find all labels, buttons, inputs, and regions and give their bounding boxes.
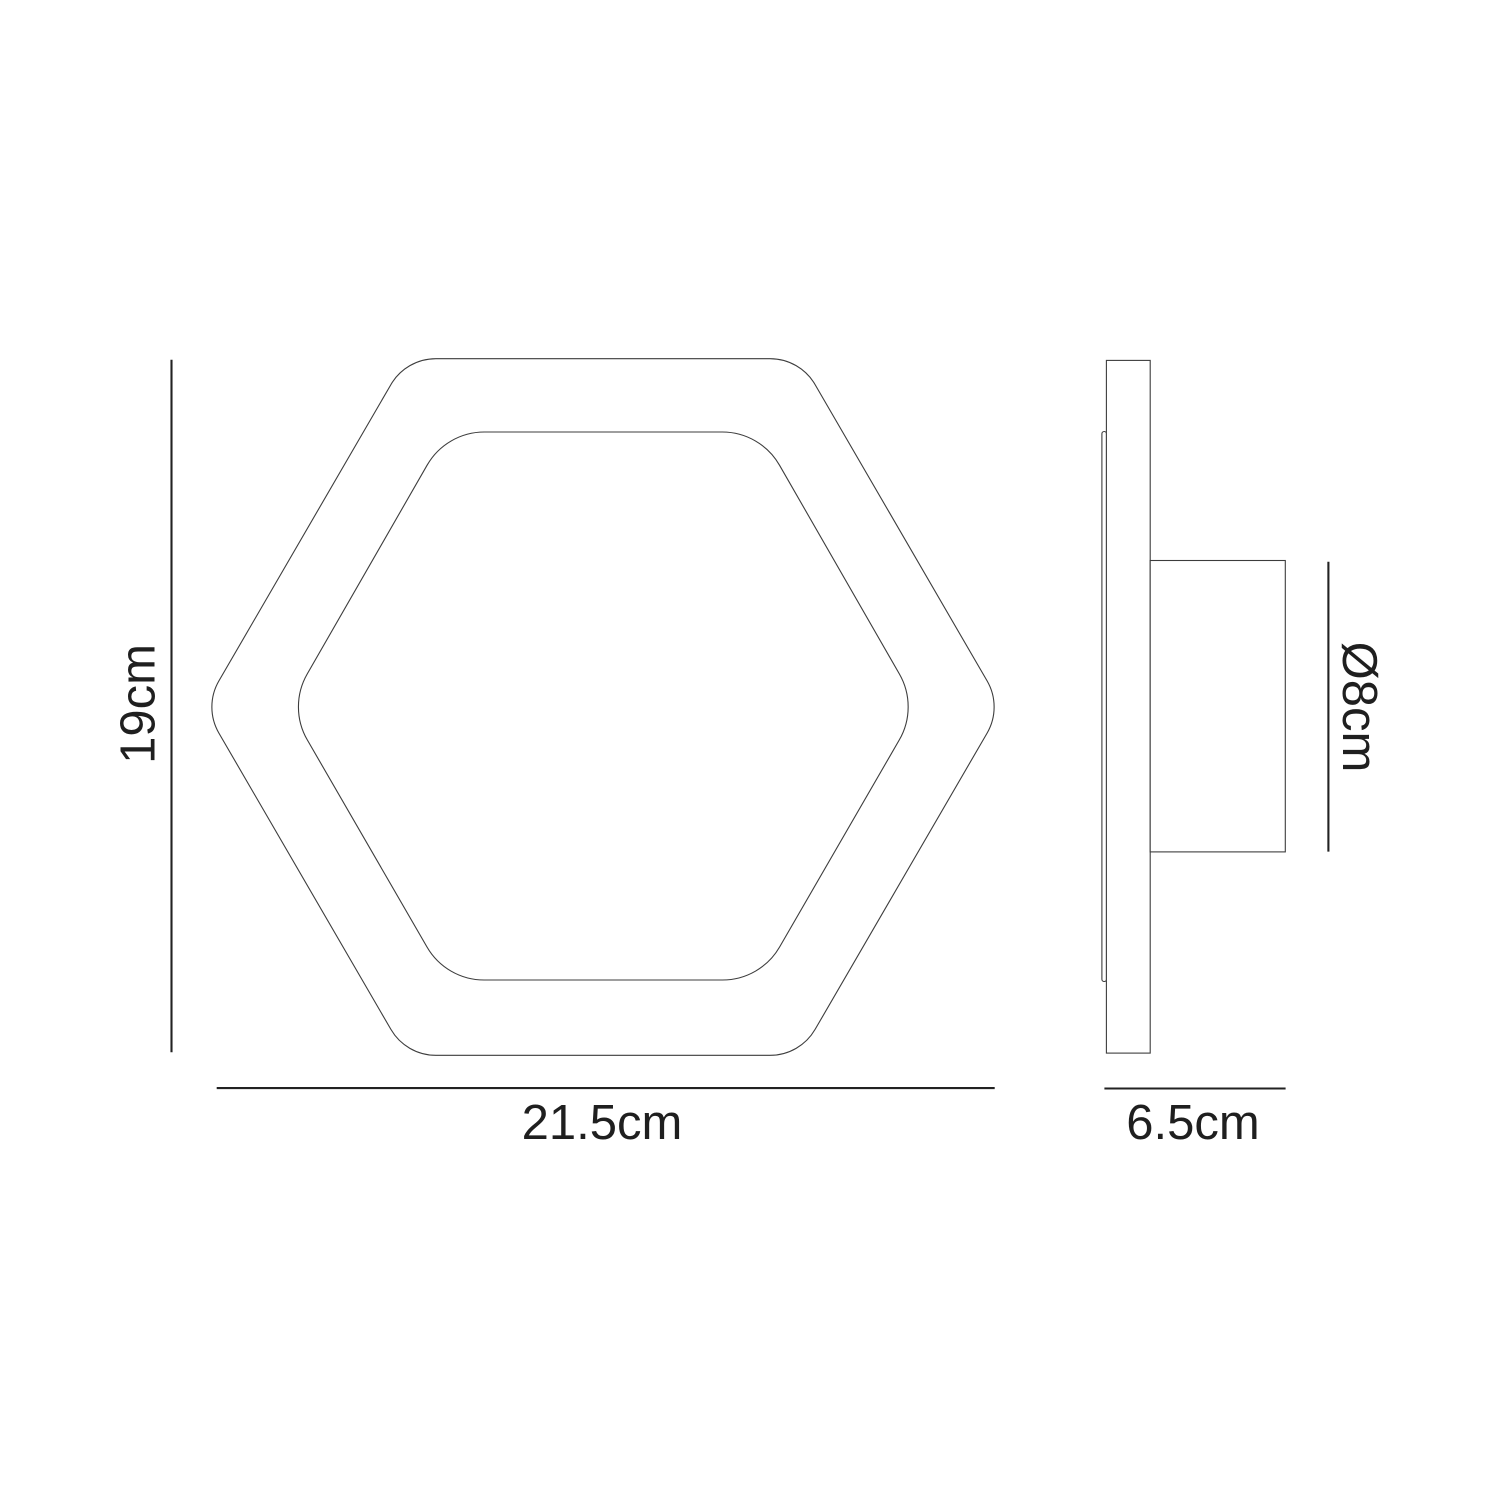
svg-text:21.5cm: 21.5cm — [522, 1096, 683, 1150]
svg-text:19cm: 19cm — [111, 644, 165, 764]
svg-text:Ø8cm: Ø8cm — [1332, 642, 1386, 773]
svg-text:6.5cm: 6.5cm — [1126, 1096, 1259, 1150]
